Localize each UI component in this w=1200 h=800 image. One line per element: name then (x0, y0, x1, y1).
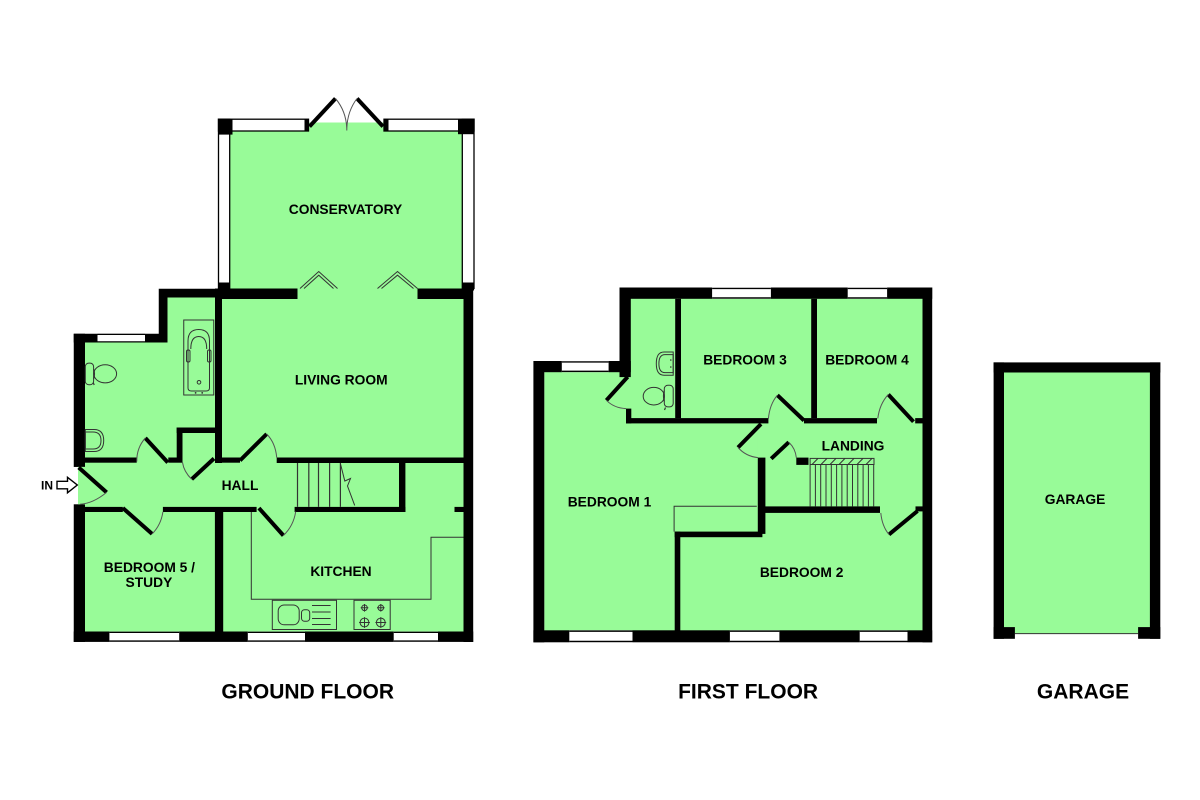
svg-text:IN: IN (41, 479, 53, 493)
svg-text:BEDROOM 4: BEDROOM 4 (825, 352, 909, 367)
svg-text:LANDING: LANDING (822, 438, 885, 453)
svg-text:GROUND FLOOR: GROUND FLOOR (221, 681, 394, 704)
svg-text:GARAGE: GARAGE (1045, 492, 1106, 507)
svg-text:BEDROOM 1: BEDROOM 1 (568, 495, 652, 510)
svg-text:STUDY: STUDY (126, 575, 173, 590)
svg-text:BEDROOM 3: BEDROOM 3 (703, 352, 787, 367)
svg-text:HALL: HALL (222, 478, 259, 493)
svg-text:GARAGE: GARAGE (1037, 681, 1129, 704)
svg-text:BEDROOM 5 /: BEDROOM 5 / (104, 560, 195, 575)
svg-text:LIVING ROOM: LIVING ROOM (295, 372, 388, 387)
svg-text:CONSERVATORY: CONSERVATORY (289, 202, 402, 217)
svg-text:FIRST FLOOR: FIRST FLOOR (678, 681, 818, 704)
svg-text:BEDROOM 2: BEDROOM 2 (760, 565, 844, 580)
svg-text:KITCHEN: KITCHEN (310, 564, 371, 579)
